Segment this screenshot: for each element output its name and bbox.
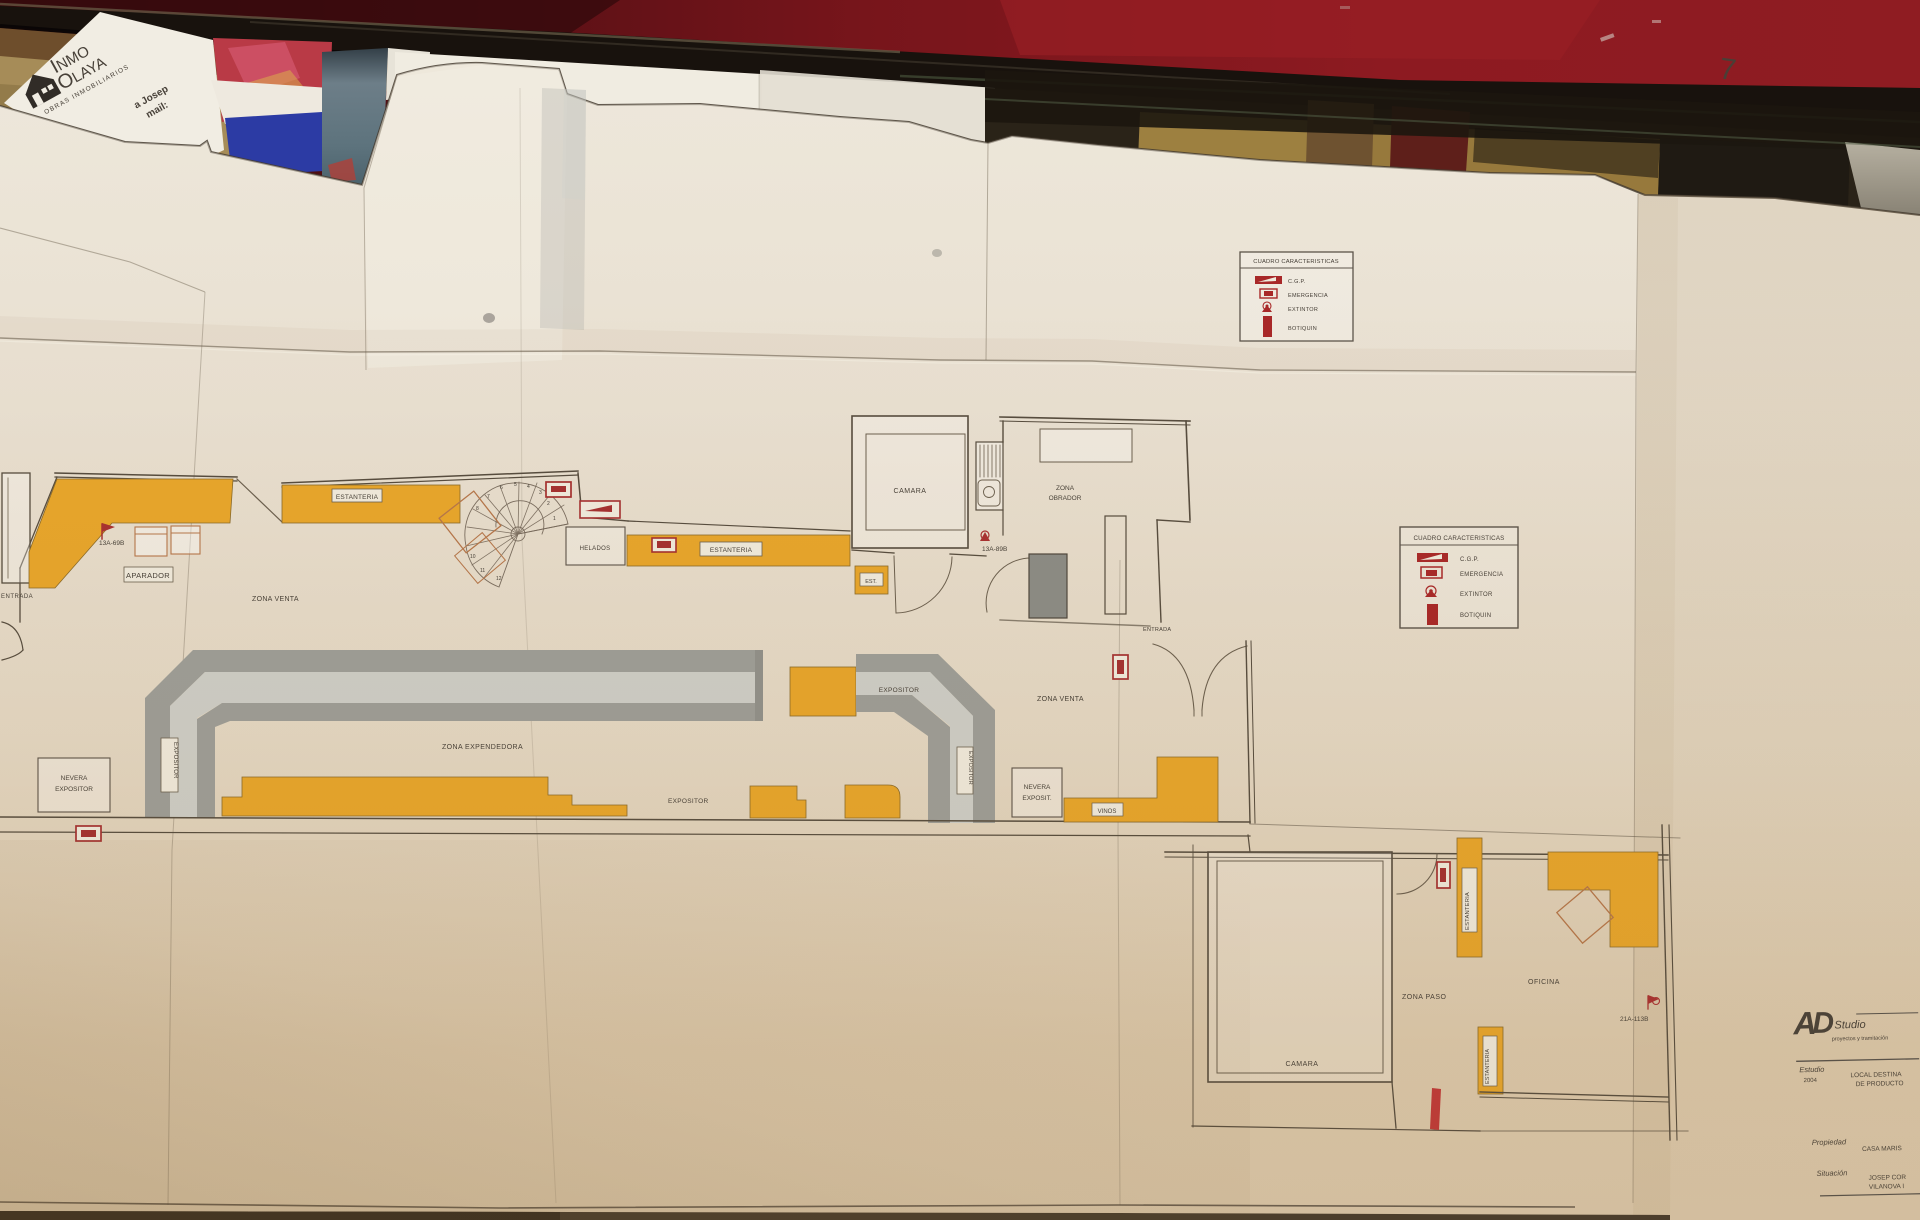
svg-text:C.G.P.: C.G.P. — [1288, 279, 1306, 285]
svg-text:EMERGENCIA: EMERGENCIA — [1288, 293, 1328, 299]
svg-text:CUADRO CARACTERISTICAS: CUADRO CARACTERISTICAS — [1253, 259, 1339, 265]
